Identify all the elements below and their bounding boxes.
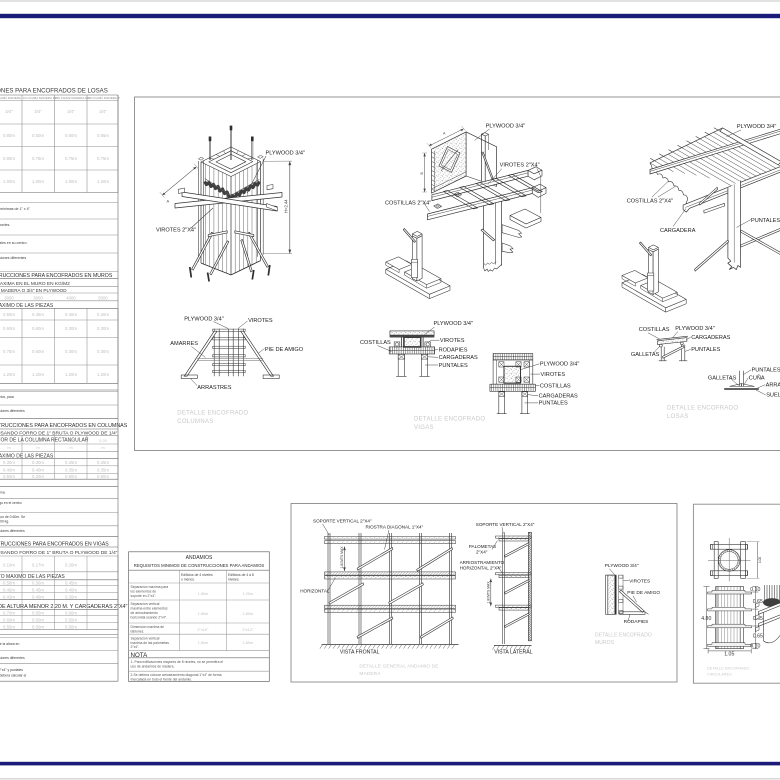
svg-text:MUROS: MUROS	[595, 640, 615, 646]
svg-text:COSTILLAS: COSTILLAS	[540, 383, 571, 389]
svg-text:1.20m: 1.20m	[97, 179, 109, 184]
svg-text:COSTILLAS 2"X4": COSTILLAS 2"X4"	[627, 199, 673, 205]
svg-text:maxima entre elementos: maxima entre elementos	[131, 607, 168, 611]
svg-text:1.80MTS MAX: 1.80MTS MAX	[487, 581, 491, 604]
svg-text:Separacion vertical: Separacion vertical	[131, 636, 160, 640]
svg-text:CARGADERAS: CARGADERAS	[439, 355, 478, 361]
svg-text:ANDAMIOS: ANDAMIOS	[186, 555, 213, 561]
svg-text:PLYWOOD 3/4": PLYWOOD 3/4"	[434, 321, 474, 327]
svg-text:0.20m: 0.20m	[32, 474, 44, 479]
svg-text:2"x10": 2"x10"	[197, 628, 209, 632]
svg-text:0.40m: 0.40m	[65, 312, 77, 317]
svg-text:1.80m: 1.80m	[243, 641, 254, 645]
svg-text:Dimension maxima de: Dimension maxima de	[131, 625, 165, 629]
svg-text:1.00m: 1.00m	[3, 179, 15, 184]
svg-text:3000: 3000	[4, 296, 14, 301]
svg-text:0.50m: 0.50m	[3, 312, 15, 317]
svg-text:de arriostramiento: de arriostramiento	[131, 611, 158, 615]
svg-text:CARGADERAS: CARGADERAS	[539, 394, 578, 400]
svg-text:soporte en 2"x4".: soporte en 2"x4".	[131, 594, 157, 598]
svg-text:PLYWOOD 3/4": PLYWOOD 3/4"	[737, 124, 777, 130]
svg-text:H=2.44: H=2.44	[284, 199, 289, 213]
svg-text:A: A	[167, 199, 170, 204]
svg-text:MADERA: MADERA	[359, 671, 381, 677]
svg-text:tablones.: tablones.	[131, 630, 145, 634]
svg-text:0.50m: 0.50m	[32, 133, 44, 138]
svg-text:Separacion vertical: Separacion vertical	[131, 602, 160, 606]
svg-text:KG KG/M2 MADERA: KG KG/M2 MADERA	[0, 96, 22, 100]
svg-text:0.45m: 0.45m	[32, 588, 44, 593]
svg-text:REQUISITOS MINIMOS DE CONSTRUC: REQUISITOS MINIMOS DE CONSTRUCCIONES PAR…	[134, 563, 265, 568]
svg-text:1- Usar piezas con dimensiones: 1- Usar piezas con dimensiones minimas d…	[0, 207, 31, 211]
svg-text:0.25m: 0.25m	[65, 460, 77, 465]
svg-text:1.20m: 1.20m	[32, 372, 44, 377]
svg-text:VIROTES: VIROTES	[629, 578, 650, 584]
svg-text:PLYWOOD 3/4": PLYWOOD 3/4"	[184, 316, 224, 322]
svg-text:0.30m: 0.30m	[65, 349, 77, 354]
svg-text:Edificios de 4 a 8: Edificios de 4 a 8	[228, 573, 254, 577]
svg-text:VIROTES: VIROTES	[248, 318, 273, 324]
svg-text:horizontal usando 2"x4".: horizontal usando 2"x4".	[131, 615, 168, 619]
svg-text:ARRIOSTRAMIENTO: ARRIOSTRAMIENTO	[460, 560, 505, 565]
svg-text:AMARRES: AMARRES	[170, 341, 198, 347]
svg-text:0.50m: 0.50m	[97, 474, 109, 479]
svg-text:0.56m: 0.56m	[32, 581, 44, 586]
svg-text:0.45m: 0.45m	[65, 581, 77, 586]
svg-text:KG KG/M2 MADERA PLY: KG KG/M2 MADERA PLY	[56, 96, 91, 100]
svg-text:INSTRUCCIONES PARA ENCOFRADOS: INSTRUCCIONES PARA ENCOFRADOS EN COLUMNA…	[0, 423, 128, 429]
svg-text:PLYWOOD 3/4": PLYWOOD 3/4"	[266, 150, 306, 156]
svg-text:3- Colocar los puntales en su: 3- Colocar los puntales en su centro.	[0, 241, 28, 245]
svg-text:PIE DE AMIGO: PIE DE AMIGO	[627, 590, 660, 596]
svg-text:DETALLE ENCOFRADO: DETALLE ENCOFRADO	[707, 666, 749, 670]
svg-text:0.10m: 0.10m	[3, 563, 15, 568]
svg-text:0.70m: 0.70m	[3, 610, 15, 615]
svg-text:COLUMNAS: COLUMNAS	[177, 419, 213, 425]
svg-text:3/4": 3/4"	[99, 109, 107, 114]
svg-text:0.40m: 0.40m	[65, 588, 77, 593]
svg-text:CUÑA: CUÑA	[749, 374, 765, 381]
svg-text:1- Usar la mitad de la altura: 1- Usar la mitad de la altura en	[0, 642, 19, 646]
svg-text:2"x12": 2"x12"	[242, 628, 254, 632]
svg-text:0.50m: 0.50m	[3, 474, 15, 479]
svg-text:PUNTALES: PUNTALES	[539, 401, 568, 407]
svg-text:ESPACIAMIENTO MAXIMO DE LAS PI: ESPACIAMIENTO MAXIMO DE LAS PIEZAS	[0, 574, 65, 580]
svg-text:1.00m: 1.00m	[32, 179, 44, 184]
svg-text:ARRASTRES: ARRASTRES	[766, 383, 780, 389]
svg-text:2- Clavar los virotes en sus b: 2- Clavar los virotes en sus bordes.	[0, 223, 10, 227]
svg-text:0.35m: 0.35m	[65, 468, 77, 473]
svg-text:0.30m: 0.30m	[97, 349, 109, 354]
svg-text:PRESION MAXIMA EN EL MURO EN K: PRESION MAXIMA EN EL MURO EN KG/M2	[0, 281, 70, 287]
svg-text:2"x4".: 2"x4".	[131, 645, 140, 649]
svg-text:PUNTALES: PUNTALES	[751, 218, 780, 224]
svg-text:0.35m: 0.35m	[97, 468, 109, 473]
svg-text:0.65m: 0.65m	[32, 610, 44, 615]
svg-text:USANDO FORRO DE 1" BRUTA O PLY: USANDO FORRO DE 1" BRUTA O PLYWOOD DE 1/…	[0, 550, 118, 556]
svg-text:1- Para edificaciones mayores: 1- Para edificaciones mayores de 8 nivel…	[131, 660, 224, 664]
svg-text:Edificios de 4 niveles: Edificios de 4 niveles	[181, 573, 213, 577]
svg-text:0.20: 0.20	[67, 438, 76, 443]
svg-text:3- Para luces de 2"x4" y punta: 3- Para luces de 2"x4" y puntales	[0, 668, 23, 672]
svg-text:0.17m: 0.17m	[32, 563, 44, 568]
svg-text:los elementos de: los elementos de	[131, 590, 157, 594]
svg-text:4.80: 4.80	[701, 616, 711, 622]
svg-text:1- Usar los amarres necesarios: 1- Usar los amarres necesarios, para	[0, 395, 14, 399]
svg-text:4000: 4000	[66, 296, 76, 301]
svg-text:0.30m: 0.30m	[97, 326, 109, 331]
svg-text:0.60m: 0.60m	[3, 326, 15, 331]
svg-text:VISTA FRONTAL: VISTA FRONTAL	[340, 650, 380, 656]
svg-text:1.80m: 1.80m	[198, 641, 209, 645]
svg-text:2- No usar dimensiones diferen: 2- No usar dimensiones diferentes	[0, 656, 25, 660]
svg-text:0.60m: 0.60m	[32, 326, 44, 331]
svg-text:0.43m: 0.43m	[3, 595, 15, 600]
svg-text:0.20m: 0.20m	[97, 312, 109, 317]
svg-text:0.10: 0.10	[750, 587, 760, 593]
svg-text:4- No usar dimensiones diferen: 4- No usar dimensiones diferentes	[0, 256, 26, 260]
svg-text:1.80m: 1.80m	[198, 612, 209, 616]
svg-text:0.55m: 0.55m	[65, 617, 77, 622]
svg-text:mayores se debera calcular el: mayores se debera calcular el	[0, 674, 26, 678]
svg-text:ARRASTRES: ARRASTRES	[197, 385, 231, 391]
svg-text:RIOSTRA DIAGONAL 1"X4": RIOSTRA DIAGONAL 1"X4"	[366, 524, 424, 529]
svg-text:0.50m: 0.50m	[65, 474, 77, 479]
svg-text:2- No usar dimensiones diferen: 2- No usar dimensiones diferentes	[0, 409, 25, 413]
svg-text:INSTRUCCIONES PARA ENCOFRADOS: INSTRUCCIONES PARA ENCOFRADOS DE LOSAS	[0, 87, 108, 94]
svg-text:0.25m: 0.25m	[97, 460, 109, 465]
svg-text:ESPACIAMIENTO MAXIMO DE LAS PI: ESPACIAMIENTO MAXIMO DE LAS PIEZAS	[0, 454, 54, 460]
svg-text:SUELO: SUELO	[766, 393, 780, 399]
svg-text:0.58m: 0.58m	[3, 581, 15, 586]
svg-text:0.40m: 0.40m	[32, 468, 44, 473]
svg-text:VIROTES 2"X4": VIROTES 2"X4"	[156, 228, 196, 234]
svg-text:0.30m: 0.30m	[65, 326, 77, 331]
svg-text:HORIZONTAL 2"X4": HORIZONTAL 2"X4"	[460, 565, 502, 570]
svg-text:0.50m: 0.50m	[32, 617, 44, 622]
svg-text:0.60m: 0.60m	[65, 133, 77, 138]
svg-text:KG KG/M2 MADERA PLY: KG KG/M2 MADERA PLY	[23, 96, 58, 100]
svg-text:1.00: 1.00	[758, 557, 762, 563]
svg-text:1.20m: 1.20m	[65, 372, 77, 377]
svg-text:0.46m: 0.46m	[3, 588, 15, 593]
svg-text:KG KG/M2 MADERA P: KG KG/M2 MADERA P	[88, 96, 120, 100]
svg-text:PUNTALES: PUNTALES	[752, 368, 780, 374]
svg-text:DETALLE ENCOFRADO: DETALLE ENCOFRADO	[414, 417, 485, 423]
svg-text:INSTRUCCIONES PARA ENCOFRADOS: INSTRUCCIONES PARA ENCOFRADOS EN VIGAS	[0, 542, 109, 548]
svg-text:0.20m: 0.20m	[65, 563, 77, 568]
svg-text:1- Amarrar bien la columna.: 1- Amarrar bien la columna.	[0, 491, 6, 495]
svg-text:0.10: 0.10	[750, 644, 760, 650]
svg-text:LADO MAYOR DE LA COLUMNA RECTA: LADO MAYOR DE LA COLUMNA RECTANGULAR	[0, 438, 89, 444]
svg-text:SOPORTE VERTICAL 2"X4": SOPORTE VERTICAL 2"X4"	[313, 518, 372, 523]
svg-text:0.60m: 0.60m	[65, 610, 77, 615]
svg-text:PLYWOOD 3/4": PLYWOOD 3/4"	[486, 123, 526, 129]
svg-text:5000: 5000	[98, 296, 108, 301]
svg-text:0.20: 0.20	[34, 438, 43, 443]
svg-text:1.20m: 1.20m	[3, 372, 15, 377]
svg-text:0.75m: 0.75m	[97, 156, 109, 161]
svg-text:0.30m: 0.30m	[32, 460, 44, 465]
svg-text:0.50m: 0.50m	[65, 624, 77, 629]
svg-text:PIE DE AMIGO: PIE DE AMIGO	[265, 347, 304, 353]
svg-text:USANDO PUNTALES DE ALTURA MENO: USANDO PUNTALES DE ALTURA MENOR 2.20 M. …	[0, 604, 128, 610]
svg-text:4- No usar dimensiones diferen: 4- No usar dimensiones diferentes	[0, 529, 25, 533]
svg-text:3/4": 3/4"	[5, 109, 13, 114]
svg-text:PUNTALES: PUNTALES	[439, 363, 468, 369]
svg-text:PLYWOOD 3/4": PLYWOOD 3/4"	[540, 362, 580, 368]
svg-text:GALLETAS: GALLETAS	[708, 375, 737, 381]
svg-text:CARGADERAS: CARGADERAS	[691, 335, 730, 341]
svg-text:PALOMETAS: PALOMETAS	[469, 544, 496, 549]
svg-text:0.30m: 0.30m	[65, 595, 77, 600]
svg-text:DETALLE ENCOFRADO: DETALLE ENCOFRADO	[595, 633, 652, 639]
svg-text:PLYWOOD 3/4": PLYWOOD 3/4"	[605, 563, 639, 569]
svg-text:2"X4": 2"X4"	[476, 549, 488, 554]
svg-text:3- En columnas de lado mayor d: 3- En columnas de lado mayor de 0.60m. S…	[0, 515, 25, 519]
svg-text:3/4": 3/4"	[67, 109, 75, 114]
svg-text:LOSAS: LOSAS	[667, 414, 689, 420]
svg-text:0.30m: 0.30m	[3, 460, 15, 465]
svg-text:mercalada en todo el frente de: mercalada en todo el frente del andamio.	[131, 678, 193, 682]
svg-text:PLYWOOD 3/4": PLYWOOD 3/4"	[675, 326, 715, 332]
svg-text:o menos.: o menos.	[181, 577, 195, 581]
svg-text:RODAPIES: RODAPIES	[439, 347, 468, 353]
svg-text:VIROTES: VIROTES	[541, 372, 566, 378]
svg-text:usara presion de 1000 kg.: usara presion de 1000 kg.	[0, 520, 9, 524]
svg-text:0.60m: 0.60m	[32, 349, 44, 354]
svg-text:VISTA LATERAL: VISTA LATERAL	[494, 650, 533, 656]
svg-text:0.80m: 0.80m	[3, 133, 15, 138]
svg-text:HORIZONTAL: HORIZONTAL	[300, 589, 330, 594]
svg-text:3000: 3000	[33, 296, 43, 301]
svg-text:0.65: 0.65	[753, 634, 763, 640]
svg-text:2- Colocar los pies de amigo e: 2- Colocar los pies de amigo en el centr…	[0, 501, 22, 505]
svg-text:0.75m: 0.75m	[32, 156, 44, 161]
svg-text:Separacion maxima para: Separacion maxima para	[131, 585, 169, 589]
svg-text:CARGADERA: CARGADERA	[660, 228, 696, 234]
svg-text:PUNTALES: PUNTALES	[691, 347, 720, 353]
svg-text:SOPORTE VERTICAL 2"X4": SOPORTE VERTICAL 2"X4"	[476, 522, 535, 527]
svg-text:maxima de las palometas: maxima de las palometas	[131, 641, 170, 645]
svg-text:0.60m: 0.60m	[3, 617, 15, 622]
svg-text:VIROTES 2"X4": VIROTES 2"X4"	[500, 163, 540, 169]
svg-text:1.80m: 1.80m	[243, 612, 254, 616]
svg-text:COSTILLAS: COSTILLAS	[639, 327, 670, 333]
svg-text:0.55m: 0.55m	[3, 624, 15, 629]
svg-text:1.80MTS MAX: 1.80MTS MAX	[340, 546, 344, 569]
svg-text:GALLETAS: GALLETAS	[631, 352, 660, 358]
svg-text:DETALLE GENERAL ANDAMIO DE: DETALLE GENERAL ANDAMIO DE	[359, 664, 438, 670]
svg-text:1.20m: 1.20m	[243, 592, 254, 596]
svg-text:2-Se debera colocar arriostram: 2-Se debera colocar arriostramiento diag…	[131, 673, 222, 677]
svg-text:1.20m: 1.20m	[97, 372, 109, 377]
svg-text:0.65m: 0.65m	[97, 133, 109, 138]
svg-text:niveles.: niveles.	[228, 577, 240, 581]
svg-text:DETALLE ENCOFRADO: DETALLE ENCOFRADO	[667, 406, 738, 412]
svg-text:0.50m: 0.50m	[32, 624, 44, 629]
svg-text:0.20: 0.20	[99, 438, 108, 443]
svg-text:uso de andamios de madera.: uso de andamios de madera.	[131, 664, 175, 668]
svg-text:RODAPIES: RODAPIES	[624, 619, 649, 625]
svg-text:1.80m: 1.80m	[198, 592, 209, 596]
svg-text:0.80m: 0.80m	[3, 156, 15, 161]
svg-text:1.05: 1.05	[724, 652, 734, 658]
svg-text:COSTILLAS: COSTILLAS	[360, 340, 391, 346]
svg-text:3/4": 3/4"	[34, 109, 42, 114]
svg-text:CIRCULARES: CIRCULARES	[707, 673, 732, 677]
svg-text:0.45m: 0.45m	[32, 312, 44, 317]
svg-text:VIGAS: VIGAS	[414, 425, 434, 431]
svg-text:1.00m: 1.00m	[65, 179, 77, 184]
svg-text:0.40m: 0.40m	[3, 468, 15, 473]
svg-text:0.75m: 0.75m	[3, 349, 15, 354]
svg-text:0.75m: 0.75m	[65, 156, 77, 161]
svg-text:0.40m: 0.40m	[32, 595, 44, 600]
svg-text:USANDO MADERA O 3/4" EN PLYWOO: USANDO MADERA O 3/4" EN PLYWOOD	[0, 288, 67, 293]
svg-text:VIROTES: VIROTES	[440, 338, 465, 344]
svg-text:DETALLE ENCOFRADO: DETALLE ENCOFRADO	[177, 411, 248, 417]
